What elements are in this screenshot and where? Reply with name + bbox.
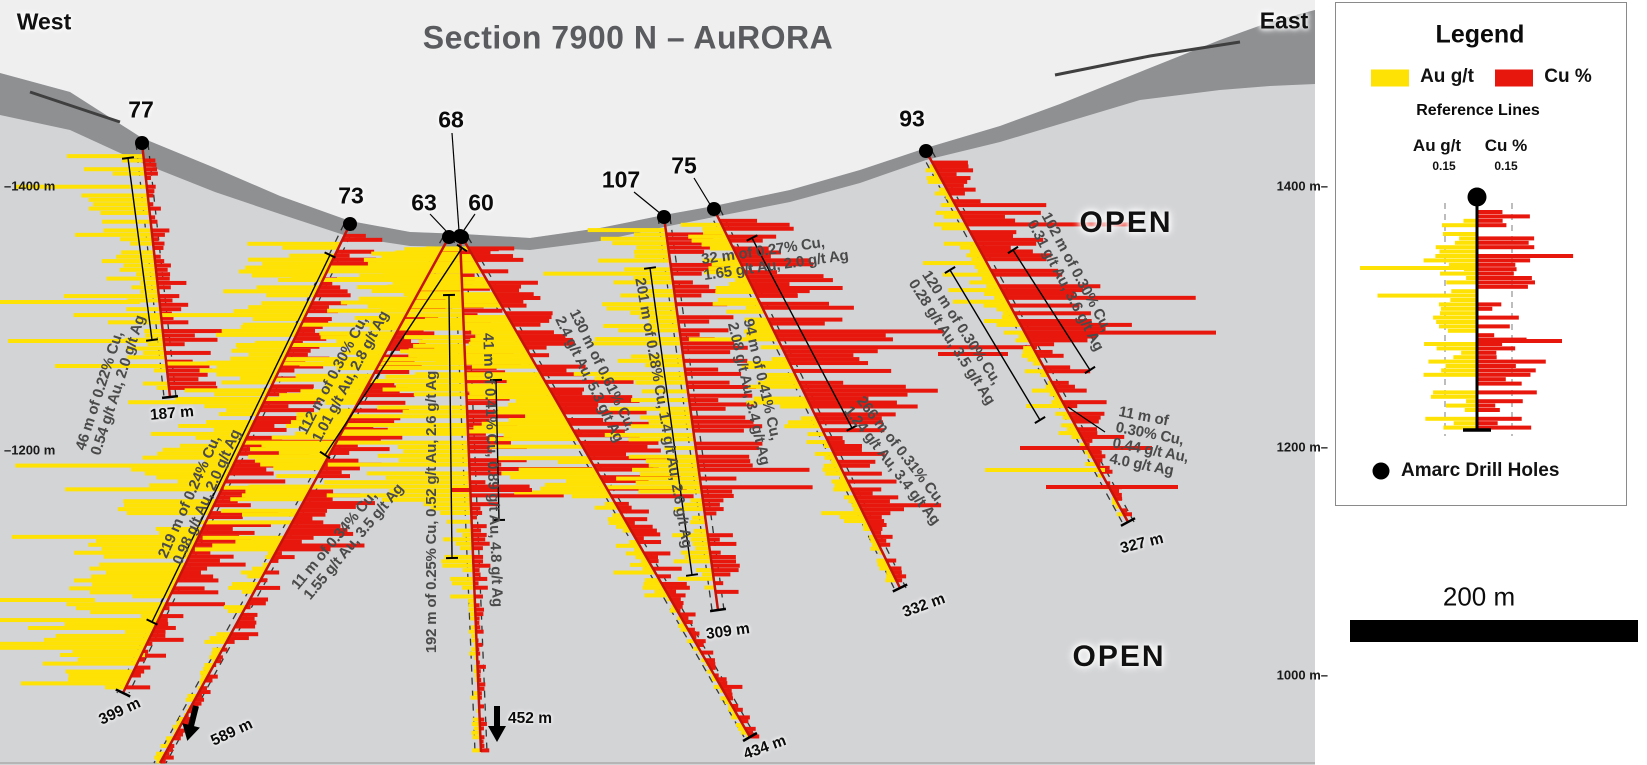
cu-bar xyxy=(854,491,873,495)
cu-bar xyxy=(156,272,170,276)
drill-collar-dot xyxy=(657,210,671,224)
au-bar xyxy=(702,572,713,576)
au-bar xyxy=(102,220,151,224)
cu-bar xyxy=(1080,431,1098,435)
au-bar xyxy=(408,353,530,357)
cu-bar xyxy=(200,531,254,535)
cu-bar xyxy=(683,350,731,354)
cross-section-figure: West East Section 7900 N – AuRORA 77187 … xyxy=(0,0,1647,765)
au-bar xyxy=(125,630,153,634)
cu-bar xyxy=(491,285,521,289)
cu-bar xyxy=(838,460,875,464)
cu-bar-spike xyxy=(1046,485,1178,489)
au-bar xyxy=(501,471,598,475)
cu-bar xyxy=(332,447,389,451)
au-bar-spike xyxy=(985,468,1105,472)
cu-bar xyxy=(337,250,375,254)
cu-bar xyxy=(162,320,189,324)
cu-bar xyxy=(784,349,878,353)
cu-bar xyxy=(934,164,968,168)
hole-id-label: 60 xyxy=(468,190,494,217)
cu-bar xyxy=(168,377,198,381)
cu-bar xyxy=(252,424,274,428)
cu-bar xyxy=(704,507,724,511)
au-bar xyxy=(440,511,471,515)
cu-bar xyxy=(530,353,549,357)
cu-bar xyxy=(250,597,268,601)
cu-bar xyxy=(471,507,480,511)
au-bar xyxy=(75,233,152,237)
cu-bar xyxy=(711,555,736,559)
au-bar xyxy=(116,255,154,259)
au-bar xyxy=(248,258,333,262)
au-bar xyxy=(90,590,172,594)
cu-bar xyxy=(625,517,648,521)
au-bar xyxy=(231,349,288,353)
au-bar xyxy=(490,445,583,449)
cu-bar xyxy=(473,546,483,550)
cu-bar xyxy=(724,227,794,231)
au-bar xyxy=(198,520,292,524)
cu-bar xyxy=(711,559,736,563)
au-bar-spike xyxy=(60,653,145,657)
au-bar xyxy=(462,586,474,590)
au-bar xyxy=(467,395,555,399)
cu-bar xyxy=(863,511,890,515)
au-bar xyxy=(928,180,943,184)
cu-swatch xyxy=(1495,70,1533,87)
cu-bar xyxy=(955,203,1046,207)
au-bar xyxy=(729,282,751,286)
scale-label: 200 m xyxy=(1443,582,1515,613)
cu-bar xyxy=(152,228,170,232)
au-bar xyxy=(414,392,467,396)
elevation-label-right: 1200 m– xyxy=(1277,440,1328,455)
cu-bar xyxy=(697,455,749,459)
au-bar xyxy=(540,487,607,491)
cu-bar xyxy=(271,384,313,388)
cu-bar xyxy=(155,263,170,267)
cu-bar xyxy=(168,373,208,377)
au-bar xyxy=(949,288,1002,292)
cu-bar xyxy=(472,524,487,528)
cu-bar xyxy=(699,468,810,472)
au-bar xyxy=(241,570,265,574)
drill-collar-dot xyxy=(135,136,149,150)
au-bar xyxy=(121,250,154,254)
au-bar xyxy=(364,258,475,262)
au-bar xyxy=(100,211,149,215)
cu-bar xyxy=(678,320,709,324)
au-bar xyxy=(417,357,532,361)
au-bar xyxy=(461,315,509,319)
cu-bar xyxy=(256,586,280,590)
toe-tick xyxy=(162,396,178,398)
cu-bar xyxy=(1044,365,1070,369)
au-bar xyxy=(387,285,490,289)
cu-bar xyxy=(687,381,730,385)
cu-bar xyxy=(1029,338,1087,342)
cu-bar xyxy=(273,555,294,559)
reference-lines-title: Reference Lines xyxy=(1416,102,1540,120)
cu-bar xyxy=(474,586,488,590)
au-bar xyxy=(801,416,817,420)
cu-bar xyxy=(716,590,739,594)
cu-bar xyxy=(473,555,483,559)
cu-bar xyxy=(753,286,843,290)
cu-bar xyxy=(698,459,751,463)
cu-bar xyxy=(675,293,702,297)
au-bar xyxy=(232,582,258,586)
au-bar xyxy=(21,681,128,685)
au-bar xyxy=(613,571,655,575)
au-bar xyxy=(195,547,277,551)
au-bar xyxy=(123,263,155,267)
au-bar xyxy=(261,301,311,305)
au-bar xyxy=(498,407,561,411)
au-bar xyxy=(960,246,979,250)
cu-bar xyxy=(875,535,893,539)
cu-bar xyxy=(189,555,234,559)
hole-id-label: 73 xyxy=(338,183,364,210)
cu-bar xyxy=(284,536,314,540)
elevation-label-left: –1400 m xyxy=(4,179,55,194)
au-swatch xyxy=(1371,70,1409,87)
cu-bar xyxy=(861,507,904,511)
au-bar xyxy=(695,546,709,550)
au-bar xyxy=(595,337,681,341)
cu-bar xyxy=(344,234,366,238)
au-bar xyxy=(443,537,472,541)
au-bar xyxy=(247,242,340,246)
drill-collar-dot xyxy=(455,230,469,244)
cu-bar xyxy=(561,407,598,411)
au-bar xyxy=(120,268,156,272)
cu-bar xyxy=(1077,427,1096,431)
cu-bar xyxy=(463,309,502,313)
au-bar xyxy=(772,357,788,361)
cu-bar xyxy=(474,577,487,581)
cu-bar xyxy=(342,238,382,242)
au-bar xyxy=(456,542,473,546)
cu-bar xyxy=(786,353,854,357)
au-bar xyxy=(84,167,145,171)
cu-bar xyxy=(158,285,171,289)
au-bar xyxy=(143,351,165,355)
au-bar xyxy=(147,342,164,346)
cu-bar xyxy=(755,290,798,294)
cu-bar xyxy=(1063,400,1107,404)
cu-bar xyxy=(174,586,205,590)
cu-bar xyxy=(678,315,734,319)
drill-collar-dot xyxy=(919,144,933,158)
au-bar xyxy=(704,586,714,590)
au-bar xyxy=(233,309,307,313)
au-bar xyxy=(242,513,296,517)
au-bar xyxy=(702,243,732,247)
au-bar xyxy=(262,262,331,266)
cu-bar xyxy=(629,525,653,529)
cu-bar xyxy=(214,503,251,507)
cu-bar xyxy=(304,317,332,321)
cu-bar xyxy=(470,480,485,484)
cu-bar xyxy=(339,436,402,440)
elevation-label-left: –1200 m xyxy=(4,443,55,458)
cu-bar xyxy=(962,215,1005,219)
au-bar xyxy=(833,487,851,491)
au-bar xyxy=(64,294,159,298)
cu-bar xyxy=(1052,381,1069,385)
cu-bar xyxy=(185,563,245,567)
au-bar xyxy=(327,309,463,313)
cu-bar xyxy=(722,223,790,227)
au-bar xyxy=(245,490,309,494)
cu-bar xyxy=(708,533,733,537)
au-bar xyxy=(235,540,281,544)
cu-bar xyxy=(701,485,812,489)
cu-bar xyxy=(1038,354,1064,358)
au-bar xyxy=(702,227,723,231)
au-bar xyxy=(216,333,296,337)
cu-bar xyxy=(669,250,704,254)
cu-bar xyxy=(692,420,753,424)
cu-bar xyxy=(166,602,225,606)
au-bar xyxy=(74,578,177,582)
cu-bar xyxy=(947,188,976,192)
au-bar xyxy=(472,748,481,752)
cu-bar xyxy=(330,451,349,455)
au-bar xyxy=(253,317,304,321)
cu-bar xyxy=(157,277,170,281)
cu-bar xyxy=(693,429,744,433)
au-bar xyxy=(942,226,969,230)
cu-bar xyxy=(793,369,891,373)
cu-bar xyxy=(713,572,730,576)
cu-bar xyxy=(287,353,308,357)
au-bar xyxy=(1032,389,1057,393)
reference-cu-label: Cu % xyxy=(1485,136,1528,156)
au-bar xyxy=(260,463,324,467)
hole-id-label: 68 xyxy=(438,107,464,134)
drill-collar-dot xyxy=(707,202,721,216)
au-bar xyxy=(76,606,164,610)
cu-bar xyxy=(294,517,312,521)
au-bar xyxy=(460,546,473,550)
au-bar xyxy=(0,618,158,622)
au-bar xyxy=(746,306,763,310)
au-bar xyxy=(282,246,338,250)
cu-bar xyxy=(550,388,584,392)
au-bar xyxy=(248,455,328,459)
cu-bar xyxy=(299,509,327,513)
au-bar xyxy=(509,418,568,422)
cu-bar xyxy=(869,523,887,527)
au-bar xyxy=(167,361,465,365)
au-bar xyxy=(713,302,761,306)
au-bar xyxy=(463,568,474,572)
cu-bar xyxy=(932,161,968,165)
au-bar xyxy=(953,300,1008,304)
cu-bar xyxy=(674,285,710,289)
cu-bar xyxy=(937,168,974,172)
au-bar xyxy=(224,605,246,609)
au-bar xyxy=(103,228,151,232)
au-bar xyxy=(984,304,1011,308)
au-bar xyxy=(692,239,730,243)
au-bar xyxy=(823,464,840,468)
au-bar xyxy=(630,563,651,567)
cu-bar xyxy=(289,349,311,353)
cu-bar xyxy=(710,551,721,555)
au-bar xyxy=(923,261,987,265)
cu-bar xyxy=(1054,385,1075,389)
cu-bar xyxy=(164,342,184,346)
au-bar xyxy=(808,432,825,436)
cu-bar xyxy=(472,537,485,541)
cu-bar xyxy=(231,468,266,472)
cu-bar xyxy=(801,385,906,389)
au-bar xyxy=(504,433,577,437)
cu-bar xyxy=(472,529,481,533)
au-bar xyxy=(943,273,993,277)
cu-bar xyxy=(705,511,717,515)
open-label: OPEN xyxy=(1079,206,1172,240)
cu-bar xyxy=(939,172,957,176)
au-bar xyxy=(545,483,605,487)
cu-bar xyxy=(644,551,670,555)
au-bar xyxy=(766,373,795,377)
cu-bar xyxy=(828,440,844,444)
cu-bar xyxy=(1031,342,1054,346)
cu-bar xyxy=(262,404,289,408)
cu-bar xyxy=(237,621,256,625)
cu-bar xyxy=(225,479,285,483)
cu-bar xyxy=(840,464,870,468)
au-bar xyxy=(89,567,183,571)
cu-bar xyxy=(508,315,551,319)
cu-bar xyxy=(169,382,216,386)
au-bar xyxy=(154,368,167,372)
au-bar xyxy=(644,582,662,586)
cu-bar xyxy=(145,167,157,171)
au-bar xyxy=(441,559,473,563)
au-bar xyxy=(141,614,160,618)
au-bar xyxy=(844,519,867,523)
au-bar xyxy=(718,298,759,302)
cu-bar xyxy=(778,337,893,341)
au-bar xyxy=(247,574,262,578)
au-bar xyxy=(68,677,130,681)
cu-bar xyxy=(620,510,649,514)
au-bar xyxy=(0,646,145,650)
au-bar xyxy=(450,595,474,599)
cu-bar xyxy=(1035,350,1052,354)
cu-bar xyxy=(305,497,333,501)
cu-bar xyxy=(970,230,1016,234)
au-bar xyxy=(634,232,666,236)
au-bar xyxy=(608,517,625,521)
au-bar xyxy=(572,494,611,498)
cu-bar xyxy=(144,163,156,167)
hole-id-label: 63 xyxy=(411,190,437,217)
au-bar xyxy=(250,447,332,451)
au-bar xyxy=(703,231,726,235)
cu-bar xyxy=(165,351,211,355)
cu-bar xyxy=(776,333,886,337)
au-bar xyxy=(788,420,819,424)
au-bar xyxy=(272,436,339,440)
au-bar xyxy=(404,335,464,339)
cu-bar xyxy=(788,357,860,361)
au-bar xyxy=(693,529,707,533)
au-bar xyxy=(106,571,181,575)
au-bar xyxy=(692,516,705,520)
cu-bar xyxy=(126,685,150,689)
depth-label: 452 m xyxy=(508,710,552,728)
au-bar xyxy=(43,662,138,666)
cu-bar xyxy=(482,269,508,273)
section-title: Section 7900 N – AuRORA xyxy=(423,20,833,57)
au-bar xyxy=(185,388,270,392)
cu-bar xyxy=(949,192,965,196)
au-bar xyxy=(69,586,173,590)
cu-bar xyxy=(985,257,1047,261)
au-bar xyxy=(223,289,317,293)
cu-bar xyxy=(712,564,740,568)
cu-bar xyxy=(154,246,164,250)
au-bar xyxy=(997,307,1013,311)
au-bar xyxy=(447,520,472,524)
au-bar xyxy=(381,254,473,258)
cu-bar xyxy=(844,472,882,476)
cu-bar xyxy=(202,527,232,531)
cu-bar xyxy=(1046,369,1090,373)
au-bar xyxy=(276,474,317,478)
au-bar xyxy=(252,273,325,277)
cu-bar xyxy=(362,393,414,397)
cu-bar xyxy=(679,612,695,616)
cu-bar xyxy=(583,445,648,449)
cu-bar xyxy=(700,477,736,481)
cu-bar xyxy=(832,448,862,452)
cu-bar xyxy=(587,452,626,456)
cu-bar xyxy=(964,219,1015,223)
cu-bar xyxy=(867,519,884,523)
reference-au-value: 0.15 xyxy=(1432,159,1455,173)
cu-bar xyxy=(145,172,158,176)
cu-bar xyxy=(698,463,753,467)
au-bar xyxy=(66,602,165,606)
cu-bar xyxy=(322,466,360,470)
cu-bar xyxy=(177,578,218,582)
cu-bar xyxy=(473,254,513,258)
cu-bar xyxy=(310,305,329,309)
cu-bar xyxy=(282,540,302,544)
au-bar xyxy=(616,544,640,548)
au-bar xyxy=(216,372,277,376)
au-bar xyxy=(690,520,706,524)
amarc-drill-holes-label: Amarc Drill Holes xyxy=(1401,460,1559,482)
au-bar xyxy=(337,277,486,281)
cu-bar xyxy=(690,407,725,411)
cu-bar xyxy=(229,636,249,640)
au-bar xyxy=(825,472,844,476)
cu-bar xyxy=(720,219,757,223)
au-bar xyxy=(44,638,149,642)
au-bar xyxy=(203,536,284,540)
cu-bar xyxy=(502,304,527,308)
au-bar xyxy=(144,329,163,333)
